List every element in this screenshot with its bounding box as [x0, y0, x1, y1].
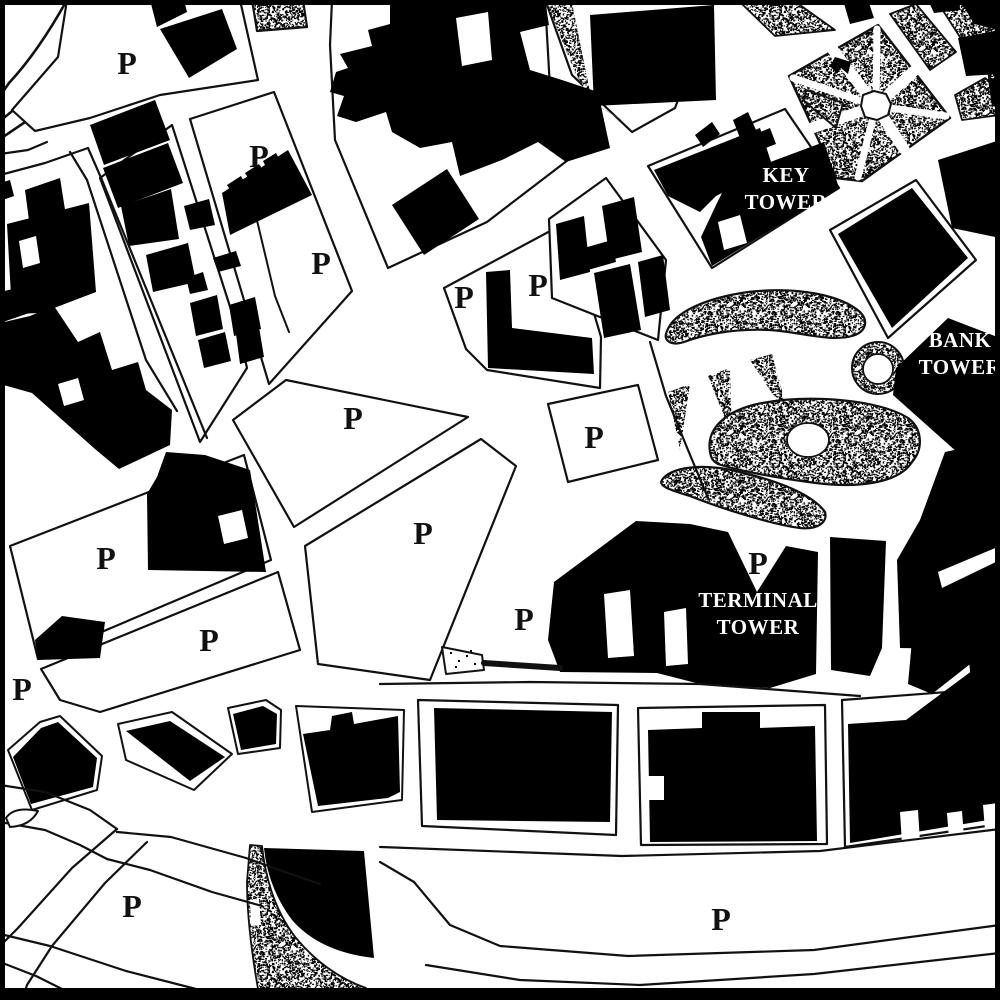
svg-text:P: P — [413, 515, 433, 551]
svg-text:P: P — [311, 245, 331, 281]
svg-text:P: P — [199, 622, 219, 658]
svg-text:BANK: BANK — [929, 328, 992, 352]
svg-text:P: P — [122, 888, 142, 924]
svg-text:P: P — [584, 419, 604, 455]
svg-text:P: P — [12, 671, 32, 707]
svg-text:TOWER: TOWER — [717, 615, 800, 639]
svg-text:P: P — [748, 545, 768, 581]
svg-text:P: P — [528, 267, 548, 303]
svg-text:P: P — [711, 901, 731, 937]
svg-text:P: P — [96, 540, 116, 576]
svg-text:KEY: KEY — [762, 163, 809, 187]
svg-text:P: P — [117, 45, 137, 81]
svg-text:P: P — [514, 601, 534, 637]
svg-text:TOWER: TOWER — [745, 190, 828, 214]
svg-text:TOWER: TOWER — [919, 355, 1000, 379]
svg-text:TERMINAL: TERMINAL — [698, 588, 818, 612]
svg-text:P: P — [454, 279, 474, 315]
svg-text:P: P — [343, 400, 363, 436]
svg-text:P: P — [249, 138, 269, 174]
